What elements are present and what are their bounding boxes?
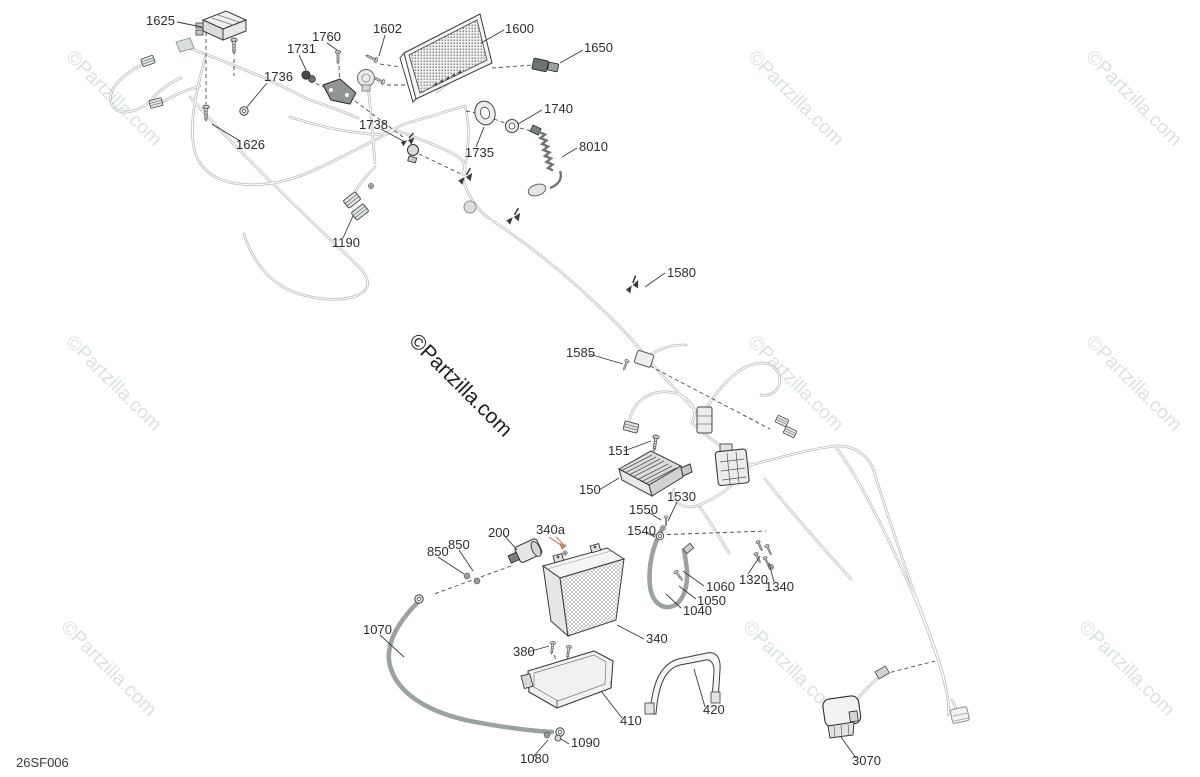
washer-1736	[240, 107, 248, 115]
gauge-display-1600	[400, 14, 492, 102]
battery-terminal-highlight-340a	[549, 537, 567, 555]
part-callout-1070: 1070	[363, 622, 392, 637]
part-callout-1585: 1585	[566, 345, 595, 360]
part-callout-200: 200	[488, 525, 510, 540]
grommet-1735	[472, 99, 498, 127]
part-callout-1340: 1340	[765, 579, 794, 594]
watermark-center: ©Partzilla.com	[404, 329, 516, 441]
part-callout-1600: 1600	[505, 21, 534, 36]
part-callout-1040: 1040	[683, 603, 712, 618]
part-callout-1736: 1736	[264, 69, 293, 84]
nuts-850	[464, 573, 480, 584]
part-callout-151: 151	[608, 443, 630, 458]
part-callout-420: 420	[703, 702, 725, 717]
sensor-probe	[358, 70, 375, 92]
part-callout-1602: 1602	[373, 21, 402, 36]
starter-solenoid-200	[508, 538, 543, 564]
part-callout-1320: 1320	[739, 572, 768, 587]
part-callout-1740: 1740	[544, 101, 573, 116]
part-callout-1625: 1625	[146, 13, 175, 28]
part-callout-3070: 3070	[852, 753, 881, 768]
ring-1740	[506, 120, 519, 133]
part-1585	[621, 350, 654, 371]
part-callout-1190: 1190	[332, 235, 360, 250]
pigtail-connectors	[141, 38, 194, 109]
battery-340	[543, 544, 624, 636]
part-callout-380: 380	[513, 644, 535, 659]
watermark-light: ©Partzilla.com	[1074, 616, 1179, 721]
parts-diagram-page: ©Partzilla.com©Partzilla.com©Partzilla.c…	[0, 0, 1200, 777]
part-callout-150: 150	[579, 482, 601, 497]
part-callout-340a: 340a	[536, 522, 566, 537]
part-callout-1540: 1540	[627, 523, 656, 538]
watermark-light: ©Partzilla.com	[743, 46, 848, 151]
component-shapes	[141, 11, 970, 741]
connector-1650	[532, 58, 559, 72]
nut-1731	[302, 71, 316, 83]
wiring-harness-diagram: ©Partzilla.com©Partzilla.com©Partzilla.c…	[0, 0, 1200, 777]
watermark-light: ©Partzilla.com	[1081, 46, 1186, 151]
watermark-layer: ©Partzilla.com©Partzilla.com©Partzilla.c…	[56, 46, 1186, 721]
screws-1550	[661, 516, 668, 531]
watermark-light: ©Partzilla.com	[61, 331, 166, 436]
part-callout-1650: 1650	[584, 40, 613, 55]
harness-clip	[505, 208, 522, 225]
screws-1320-1340	[753, 540, 773, 570]
screws-380	[549, 641, 572, 659]
grommet-small	[464, 201, 476, 213]
clip-1580	[622, 275, 641, 294]
connector-plug-bottom-right	[950, 706, 970, 723]
diagram-code: 26SF006	[16, 755, 69, 770]
part-callout-1090: 1090	[571, 735, 600, 750]
ecu-module-1625	[196, 11, 246, 40]
part-callout-1626: 1626	[236, 137, 265, 152]
part-callout-1580: 1580	[667, 265, 696, 280]
mounting-bracket	[323, 79, 356, 104]
watermark-light: ©Partzilla.com	[743, 331, 848, 436]
battery-tray-410	[521, 651, 613, 708]
part-callout-850: 850	[427, 544, 449, 559]
eyelet-1540	[656, 532, 664, 540]
part-callout-1550: 1550	[629, 502, 658, 517]
part-callout-1738: 1738	[359, 117, 388, 132]
part-callout-1080: 1080	[520, 751, 549, 766]
part-callout-1735: 1735	[465, 145, 494, 160]
part-callout-1760: 1760	[312, 29, 341, 44]
part-callout-340: 340	[646, 631, 668, 646]
watermark-light: ©Partzilla.com	[1081, 331, 1186, 436]
part-callout-1731: 1731	[287, 41, 316, 56]
screw-1760	[335, 50, 340, 64]
part-callout-1060: 1060	[706, 579, 735, 594]
screw-1625	[231, 38, 237, 55]
sensor-3070	[822, 666, 889, 738]
part-callout-410: 410	[620, 713, 642, 728]
screw-151	[651, 435, 660, 452]
watermark-light: ©Partzilla.com	[56, 616, 161, 721]
part-callout-8010: 8010	[579, 139, 608, 154]
battery-cable-eyelets	[415, 595, 564, 736]
watermark-dark: ©Partzilla.com	[404, 329, 516, 441]
coiled-wire-8010	[527, 125, 561, 198]
part-callout-1530: 1530	[667, 489, 696, 504]
part-callout-850: 850	[448, 537, 470, 552]
